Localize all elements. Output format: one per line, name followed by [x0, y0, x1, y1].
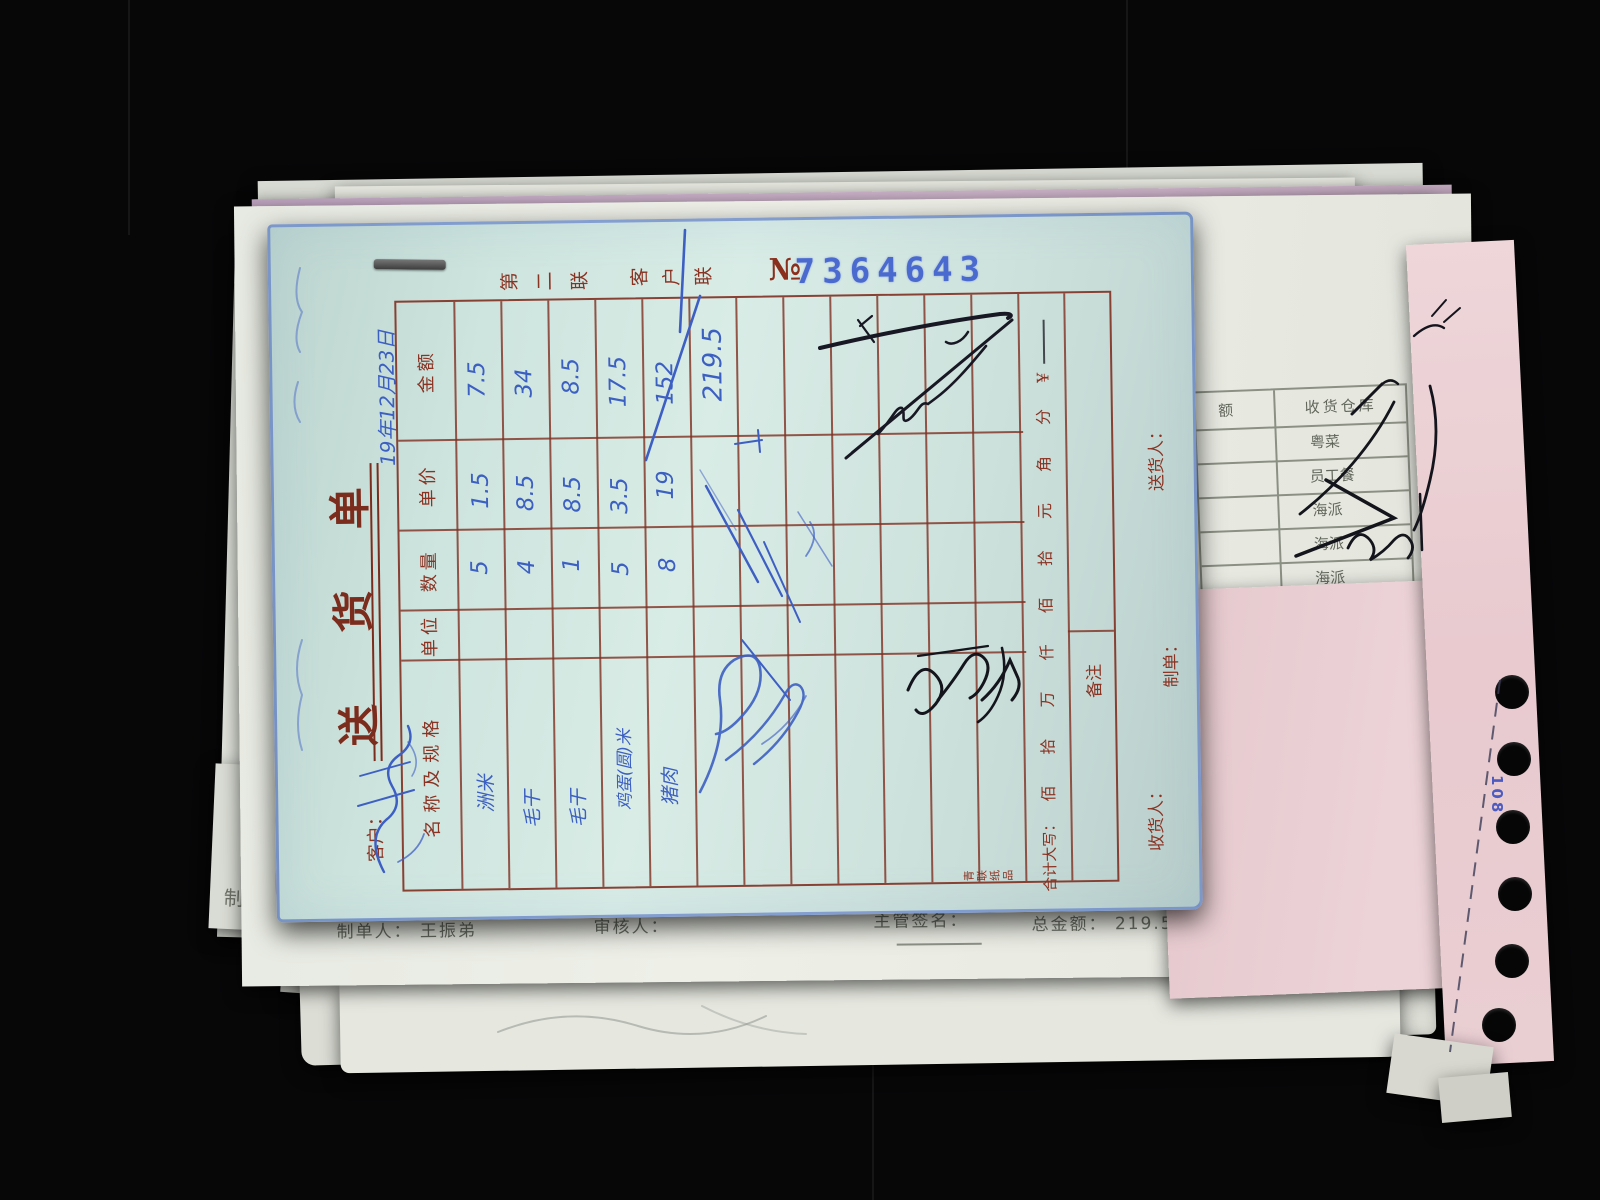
preparer-name: 王振弟 [420, 921, 477, 942]
deliverer-label: 送货人： [1142, 423, 1168, 491]
grid-line [401, 651, 1026, 662]
item-name: 猪肉 [655, 768, 683, 806]
copy-label-1: 第 二 联 [499, 267, 588, 295]
copy-char: 客 [625, 267, 652, 286]
form-title-char: 单 [316, 487, 378, 530]
grid-line [829, 297, 839, 884]
photo-stage: 第1页/共1页 制 制单人： 王振弟 审核人： 主管签名： 总金额： 219.5… [0, 0, 1600, 1200]
grid-line [547, 301, 557, 888]
grid-line [500, 301, 510, 888]
staple [374, 259, 446, 270]
grid-line [782, 297, 792, 884]
total-amount: 总金额： 219.5 [1031, 909, 1173, 935]
item-name: 毛干 [518, 790, 546, 828]
grid-line [453, 302, 463, 889]
receiver-label: 收货人： [1142, 783, 1168, 851]
table-line [1200, 523, 1410, 533]
copy-char: 联 [565, 271, 592, 290]
amount-value: 17.5 [605, 356, 632, 408]
col-header-unit: 单位 [416, 613, 443, 657]
amount-value: 34 [511, 368, 537, 398]
amount-header-partial: 额 [1218, 399, 1234, 421]
grid-line [923, 295, 933, 882]
table-line [1199, 489, 1409, 499]
amount-value: 7.5 [464, 361, 491, 398]
grid-line [401, 601, 1026, 612]
unit-price-value: 1.5 [468, 472, 495, 509]
grid-line [594, 300, 604, 887]
unit-price-value: 3.5 [607, 477, 634, 514]
total-label-text: 总金额： [1031, 914, 1107, 935]
quantity-value: 5 [467, 560, 493, 575]
quantity-value: 8 [655, 557, 681, 572]
amount-value: 8.5 [558, 358, 585, 395]
warehouse-row: 粤菜 [1310, 430, 1341, 452]
preparer-label-text: 制单人： [336, 922, 412, 943]
unit-price-value: 8.5 [513, 474, 540, 511]
col-header-quantity: 数量 [415, 548, 442, 592]
grid-line [641, 299, 651, 886]
warehouse-header: 收货仓库 [1304, 394, 1377, 418]
paper-shard [1438, 1072, 1512, 1123]
grid-line [735, 298, 745, 885]
maker-label: 制单： [1157, 636, 1183, 687]
copy-char: 二 [530, 271, 557, 290]
grid-line [399, 521, 1024, 532]
perforation-hole [1497, 742, 1531, 776]
items-table: 金额 单价 数量 单位 名称及规格 7.5 34 8.5 17.5 152 21… [394, 291, 1119, 892]
serial-number-stamp: 7364643 [794, 249, 987, 292]
sum-caps-label: 合计大写： [1041, 817, 1060, 892]
copy-char: 第 [495, 272, 522, 291]
total-value: 219.5 [1115, 914, 1174, 935]
copy-label-2: 客 户 联 [629, 262, 712, 290]
table-line [1198, 455, 1408, 465]
copy-char: 户 [657, 267, 684, 286]
amount-value: 152 [652, 361, 679, 405]
grid-line [398, 431, 1023, 442]
sum-caps-scale: 佰 拾 万 仟 佰 拾 元 角 分 [1034, 396, 1059, 802]
col-header-name-spec: 名称及规格 [417, 713, 445, 838]
perforation-hole [1495, 944, 1529, 978]
perforation-hole [1482, 1008, 1516, 1042]
quantity-value: 4 [514, 559, 540, 574]
currency-underline [1042, 320, 1045, 364]
warehouse-row: 员工餐 [1309, 464, 1355, 487]
grid-line [1017, 294, 1027, 881]
perforation-hole [1498, 877, 1532, 911]
grid-line [1063, 293, 1073, 880]
currency-symbol: ¥ [1033, 373, 1052, 383]
table-line [1196, 421, 1406, 431]
background-seam [128, 0, 130, 235]
total-amount-value: 219.5 [698, 327, 729, 402]
grid-line [970, 295, 980, 882]
customer-label: 客户： [361, 808, 388, 862]
item-name: 鸡蛋(圆)米 [610, 729, 636, 811]
quantity-value: 1 [559, 557, 585, 572]
col-header-amount: 金额 [412, 349, 439, 393]
col-header-unit-price: 单价 [414, 463, 441, 507]
unit-price-value: 8.5 [560, 476, 587, 513]
unit-price-value: 19 [653, 470, 679, 500]
grid-line [688, 299, 698, 886]
feed-mark: 108 [1488, 775, 1506, 815]
grid-line [1068, 630, 1114, 633]
remarks-label: 备注 [1080, 664, 1105, 698]
grid-line [876, 296, 886, 883]
table-line [1202, 557, 1412, 567]
warehouse-row: 海派 [1312, 498, 1343, 520]
delivery-note-form: 单 货 送 第 二 联 客 户 联 № 7364643 19年12月23日 客户… [267, 212, 1203, 923]
item-name: 毛干 [564, 789, 592, 827]
perforation-hole [1495, 675, 1529, 709]
copy-char: 联 [689, 266, 716, 285]
item-name: 洲米 [471, 774, 499, 812]
background-seam [872, 1060, 874, 1200]
quantity-value: 5 [608, 561, 634, 576]
warehouse-row: 海派 [1313, 532, 1344, 554]
signature-underline [897, 943, 982, 946]
sum-caps-band: 合计大写： 佰 拾 万 仟 佰 拾 元 角 分 ¥ [1029, 319, 1061, 891]
warehouse-table: 额 收货仓库 粤菜 员工餐 海派 海派 海派 [1193, 383, 1415, 607]
